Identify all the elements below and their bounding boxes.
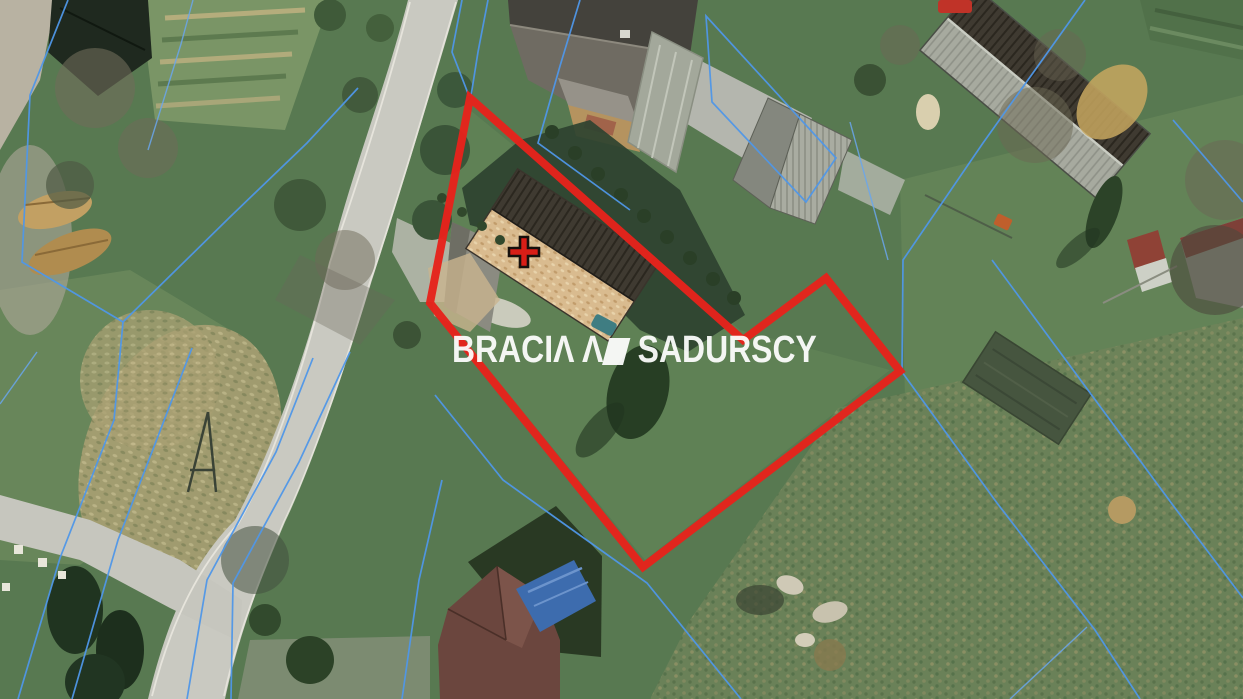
brand-logo-parallelogram-icon (602, 338, 630, 365)
watermark: BRACIΛ Λ SADURSCY (452, 331, 817, 369)
aerial-map: BRACIΛ Λ SADURSCY (0, 0, 1243, 699)
brand-logo-peak-icon: Λ (582, 331, 603, 369)
red-car (938, 0, 972, 13)
watermark-text-bracia: BRACI (452, 331, 553, 369)
wood-stack (916, 94, 940, 130)
watermark-stylized-a: Λ (553, 331, 574, 369)
driveway-patch (238, 636, 430, 699)
watermark-text-sadurscy: SADURSCY (638, 331, 817, 369)
